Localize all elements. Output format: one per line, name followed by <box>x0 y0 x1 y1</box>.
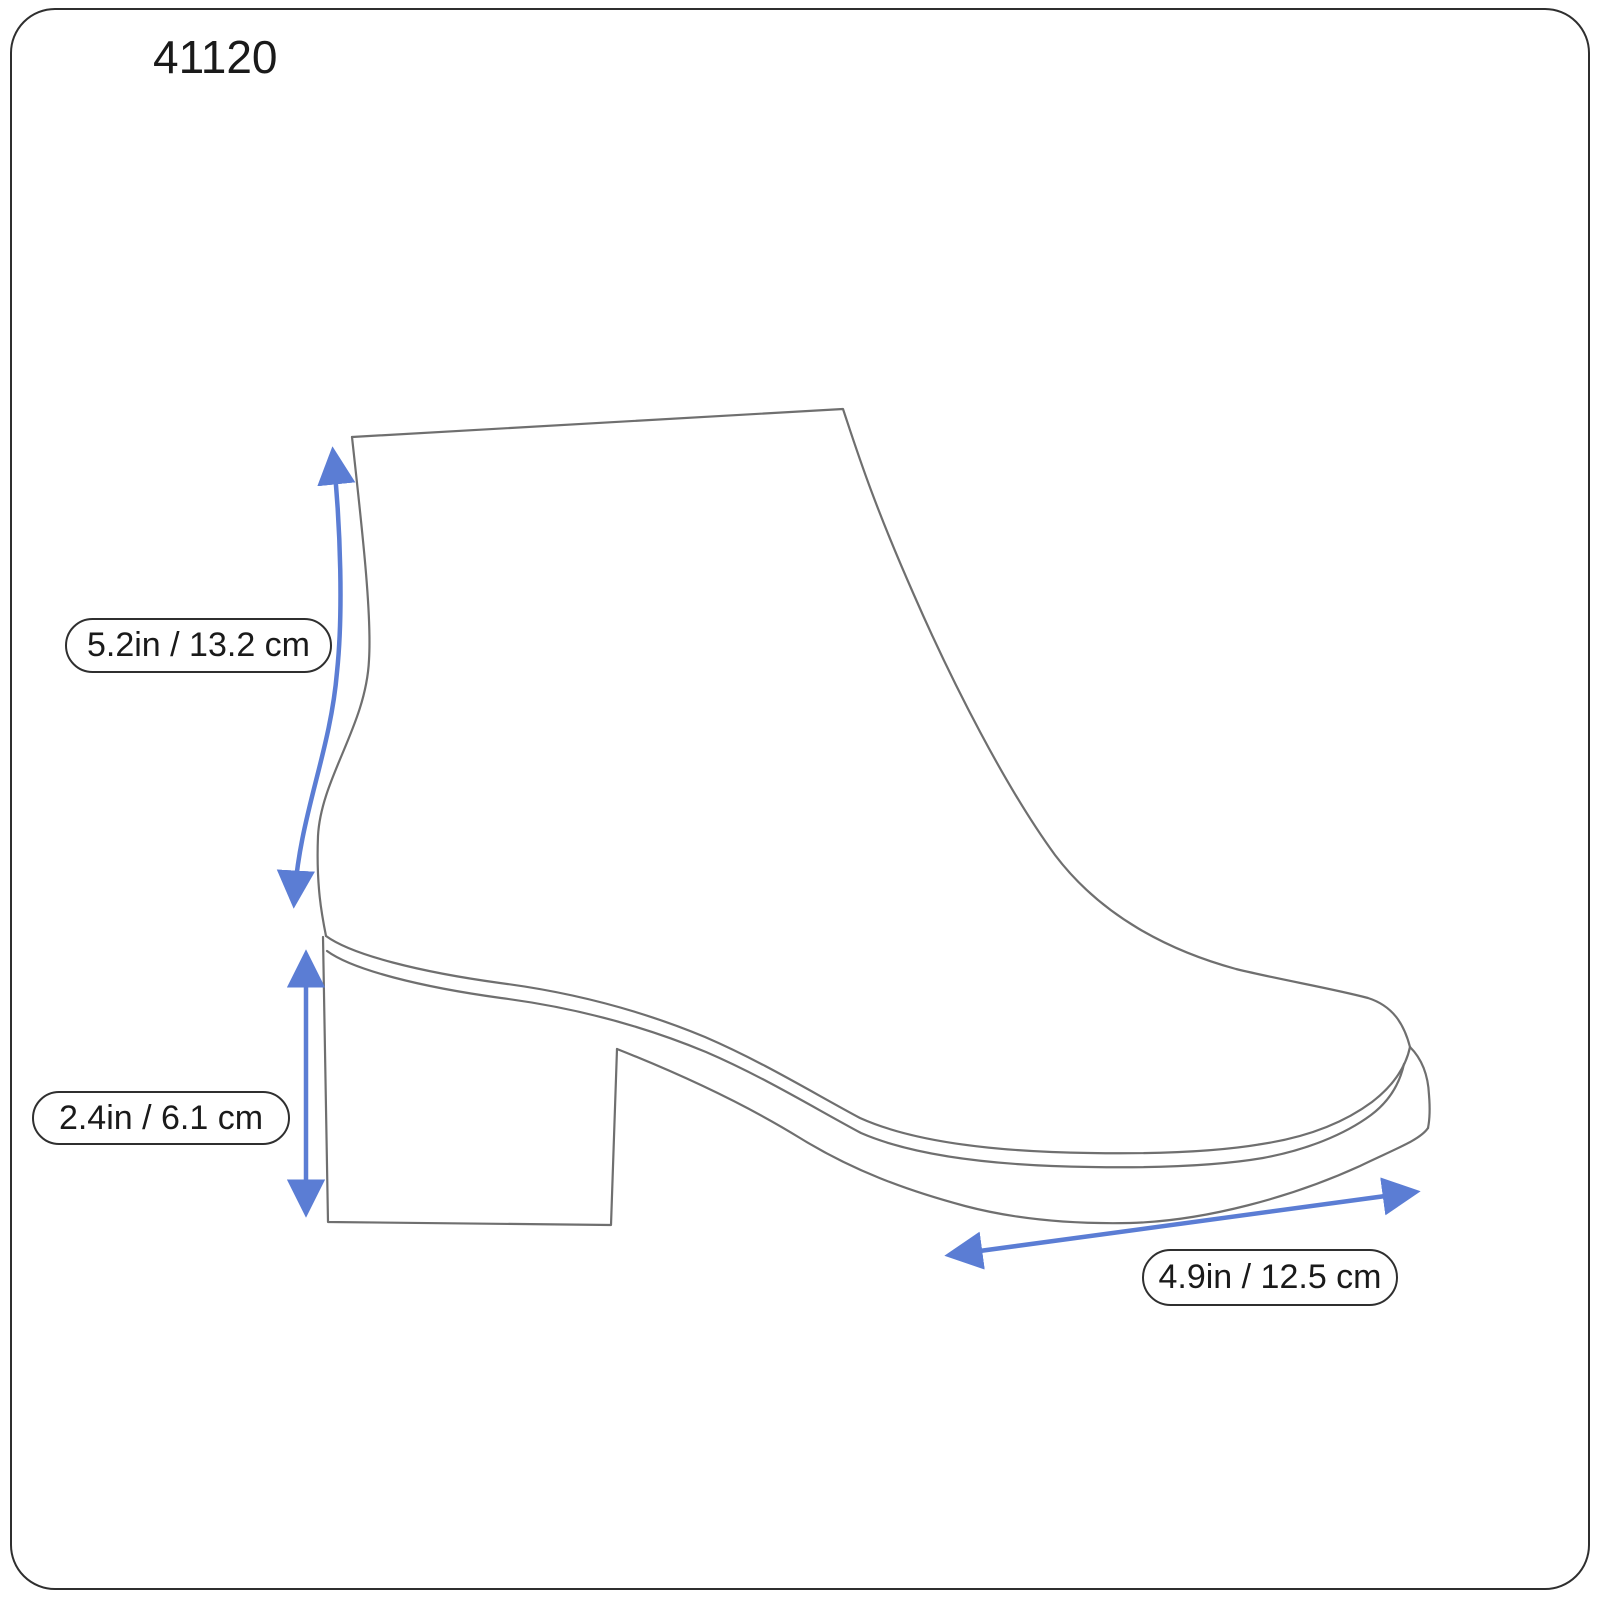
boot-upper-outline <box>352 409 1410 1047</box>
model-number: 41120 <box>153 30 278 84</box>
sole-welt-line-2 <box>327 951 1404 1167</box>
toe-cap-edge <box>1410 1047 1430 1128</box>
boot-line-drawing <box>0 0 1600 1600</box>
shaft-height-label: 5.2in / 13.2 cm <box>65 618 332 673</box>
heel-height-label: 2.4in / 6.1 cm <box>32 1091 290 1145</box>
heel-block-outline <box>323 937 617 1225</box>
sole-length-label: 4.9in / 12.5 cm <box>1142 1249 1398 1306</box>
sole-bottom-edge <box>617 1049 1428 1223</box>
sole-welt-line-1 <box>326 936 1410 1153</box>
sole-length-arrow <box>950 1192 1415 1255</box>
page-border <box>11 9 1589 1589</box>
boot-back-edge <box>318 437 370 936</box>
boot-measurement-diagram: 41120 5.2in / 13.2 cm 2.4in / 6.1 cm 4.9… <box>0 0 1600 1600</box>
